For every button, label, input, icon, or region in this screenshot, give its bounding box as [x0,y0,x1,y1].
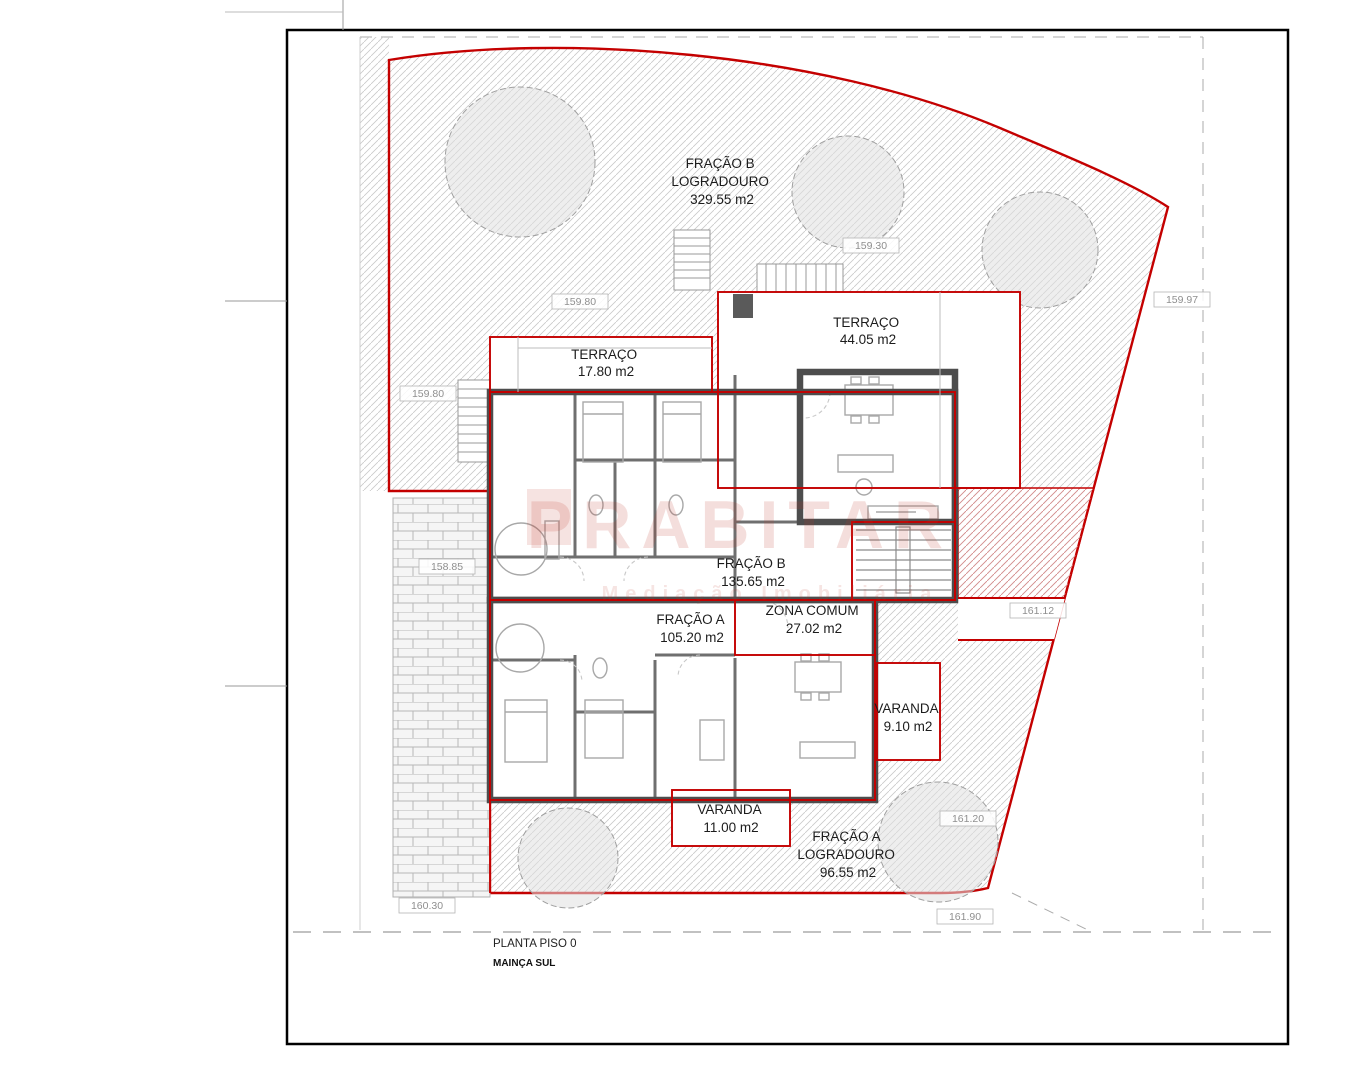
svg-text:159.80: 159.80 [564,296,596,308]
elevation-tag: 161.20 [940,811,996,826]
svg-text:159.80: 159.80 [412,388,444,400]
elevation-tag: 160.30 [399,898,455,913]
elevation-tag: 159.80 [400,386,456,401]
svg-text:161.20: 161.20 [952,813,984,825]
tree-icon [792,136,904,248]
plan-title: PLANTA PISO 0 [493,938,577,950]
svg-text:161.12: 161.12 [1022,605,1054,617]
elevation-tag: 161.12 [1010,603,1066,618]
floor-plan-drawing: PRABITAR Mediação Imobiliária FRAÇÃO B L… [0,0,1372,1080]
svg-text:160.30: 160.30 [411,900,443,912]
tree-icon [878,782,998,902]
watermark-text: PRABITAR [527,487,953,563]
masonry-wall [393,498,490,897]
elevation-tag: 161.90 [937,909,993,924]
tree-icon [445,87,595,237]
elevation-tag: 159.30 [843,238,899,253]
plan-subtitle: MAINÇA SUL [493,958,555,969]
svg-text:158.85: 158.85 [431,561,463,573]
tree-icon [518,808,618,908]
svg-text:161.90: 161.90 [949,911,981,923]
tree-icon [982,192,1098,308]
svg-text:159.30: 159.30 [855,240,887,252]
elevation-tag: 159.97 [1154,292,1210,307]
elevation-tag: 158.85 [419,559,475,574]
elevation-tag: 159.80 [552,294,608,309]
hatch-strip-left [360,37,389,491]
chimney [733,294,753,318]
floor-plan-page: PRABITAR Mediação Imobiliária FRAÇÃO B L… [0,0,1372,1080]
svg-text:159.97: 159.97 [1166,294,1198,306]
